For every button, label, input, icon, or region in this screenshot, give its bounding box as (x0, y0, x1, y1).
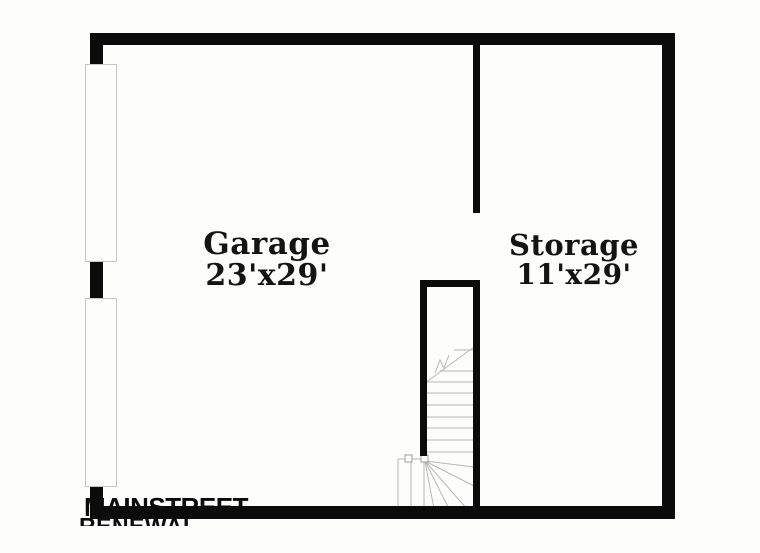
room-label-storage: Storage 11'x29' (464, 231, 684, 289)
garage-door-upper (85, 64, 117, 262)
wall-stairwell-left (420, 280, 427, 456)
stair-entry-lines (398, 459, 427, 509)
storage-dimensions: 11'x29' (464, 261, 684, 289)
stair-break-line-icon (425, 347, 474, 383)
stair-treads (427, 382, 474, 452)
stair-winder-fan (425, 461, 474, 509)
wall-exterior-bottom (90, 506, 675, 519)
garage-dimensions: 23'x29' (157, 261, 377, 291)
wall-stairwell-right (473, 280, 480, 506)
wall-exterior-top (90, 33, 675, 45)
garage-name: Garage (157, 229, 377, 260)
floor-plan: MAINSTREET RENEWAL (0, 0, 760, 553)
staircase (390, 340, 485, 512)
wall-divider-garage-storage (473, 45, 480, 213)
storage-name: Storage (464, 231, 684, 260)
garage-door-lower (85, 298, 117, 487)
room-label-garage: Garage 23'x29' (157, 229, 377, 291)
